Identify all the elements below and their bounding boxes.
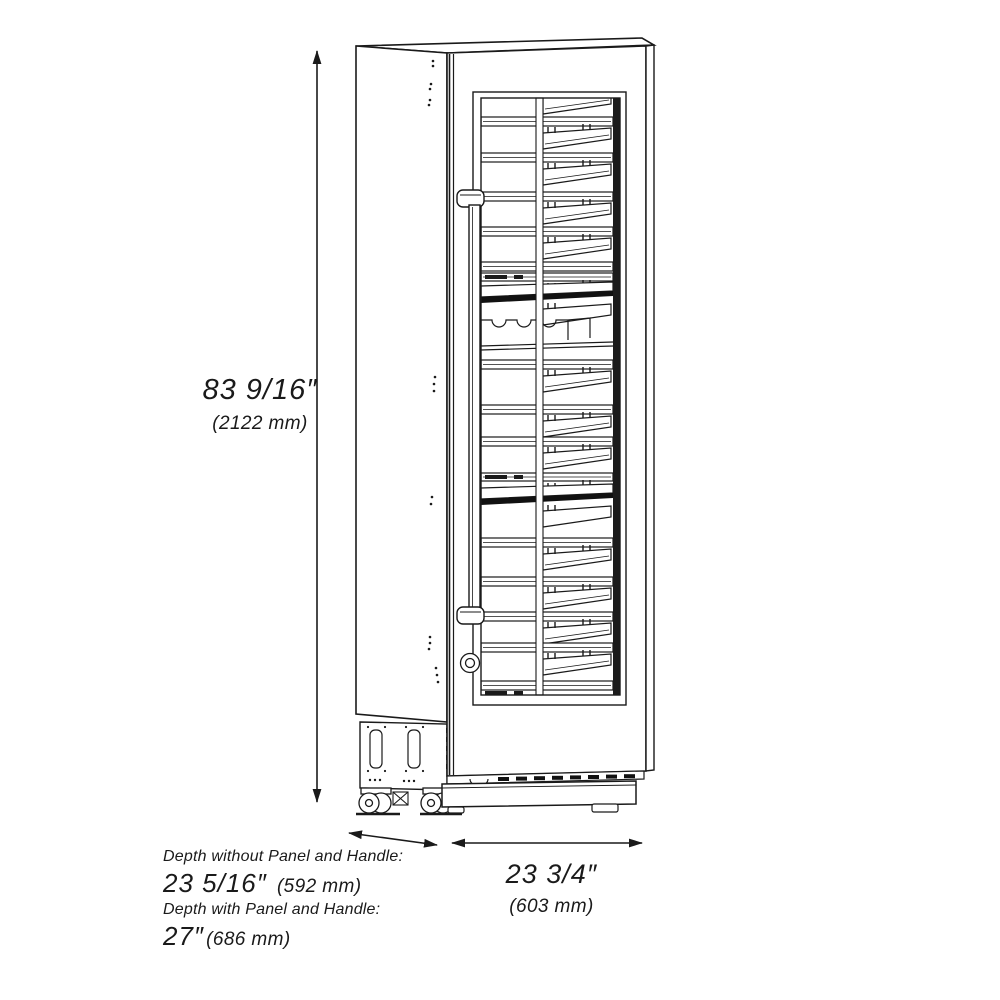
width-imperial: 23 3/4″ <box>454 858 649 890</box>
depth-dimension-arrow <box>349 833 437 845</box>
width-dimension-label: 23 3/4″ (603 mm) <box>454 858 649 917</box>
depth-with-panel-caption: Depth with Panel and Handle: <box>163 899 403 920</box>
junction-box <box>393 792 408 805</box>
width-metric: (603 mm) <box>454 896 649 917</box>
vent-slot <box>408 730 420 768</box>
vent-slot <box>370 730 382 768</box>
leveling-foot <box>448 807 464 813</box>
depth-dimension-label: Depth without Panel and Handle: 23 5/16″… <box>163 846 403 952</box>
depth-with-panel-metric: (686 mm) <box>206 929 291 950</box>
depth-with-panel-imperial: 27″ <box>163 920 204 952</box>
wine-cooler-line-drawing <box>0 0 1000 1000</box>
depth-without-panel-caption: Depth without Panel and Handle: <box>163 846 403 867</box>
cabinet-right-edge <box>646 45 654 771</box>
height-dimension-label: 83 9/16″ (2122 mm) <box>160 374 360 434</box>
base-plinth <box>442 781 636 813</box>
height-imperial: 83 9/16″ <box>160 374 360 406</box>
side-panel <box>356 46 447 722</box>
glass-door <box>442 45 654 813</box>
diagram-canvas: 83 9/16″ (2122 mm) 23 3/4″ (603 mm) Dept… <box>0 0 1000 1000</box>
height-metric: (2122 mm) <box>160 413 360 434</box>
door-lock <box>461 654 480 673</box>
door-gasket-shadow <box>613 98 620 695</box>
rack-support-column <box>536 98 543 695</box>
leveling-foot <box>592 804 618 812</box>
depth-without-panel-imperial: 23 5/16″ <box>163 867 267 899</box>
depth-without-panel-metric: (592 mm) <box>277 876 362 897</box>
